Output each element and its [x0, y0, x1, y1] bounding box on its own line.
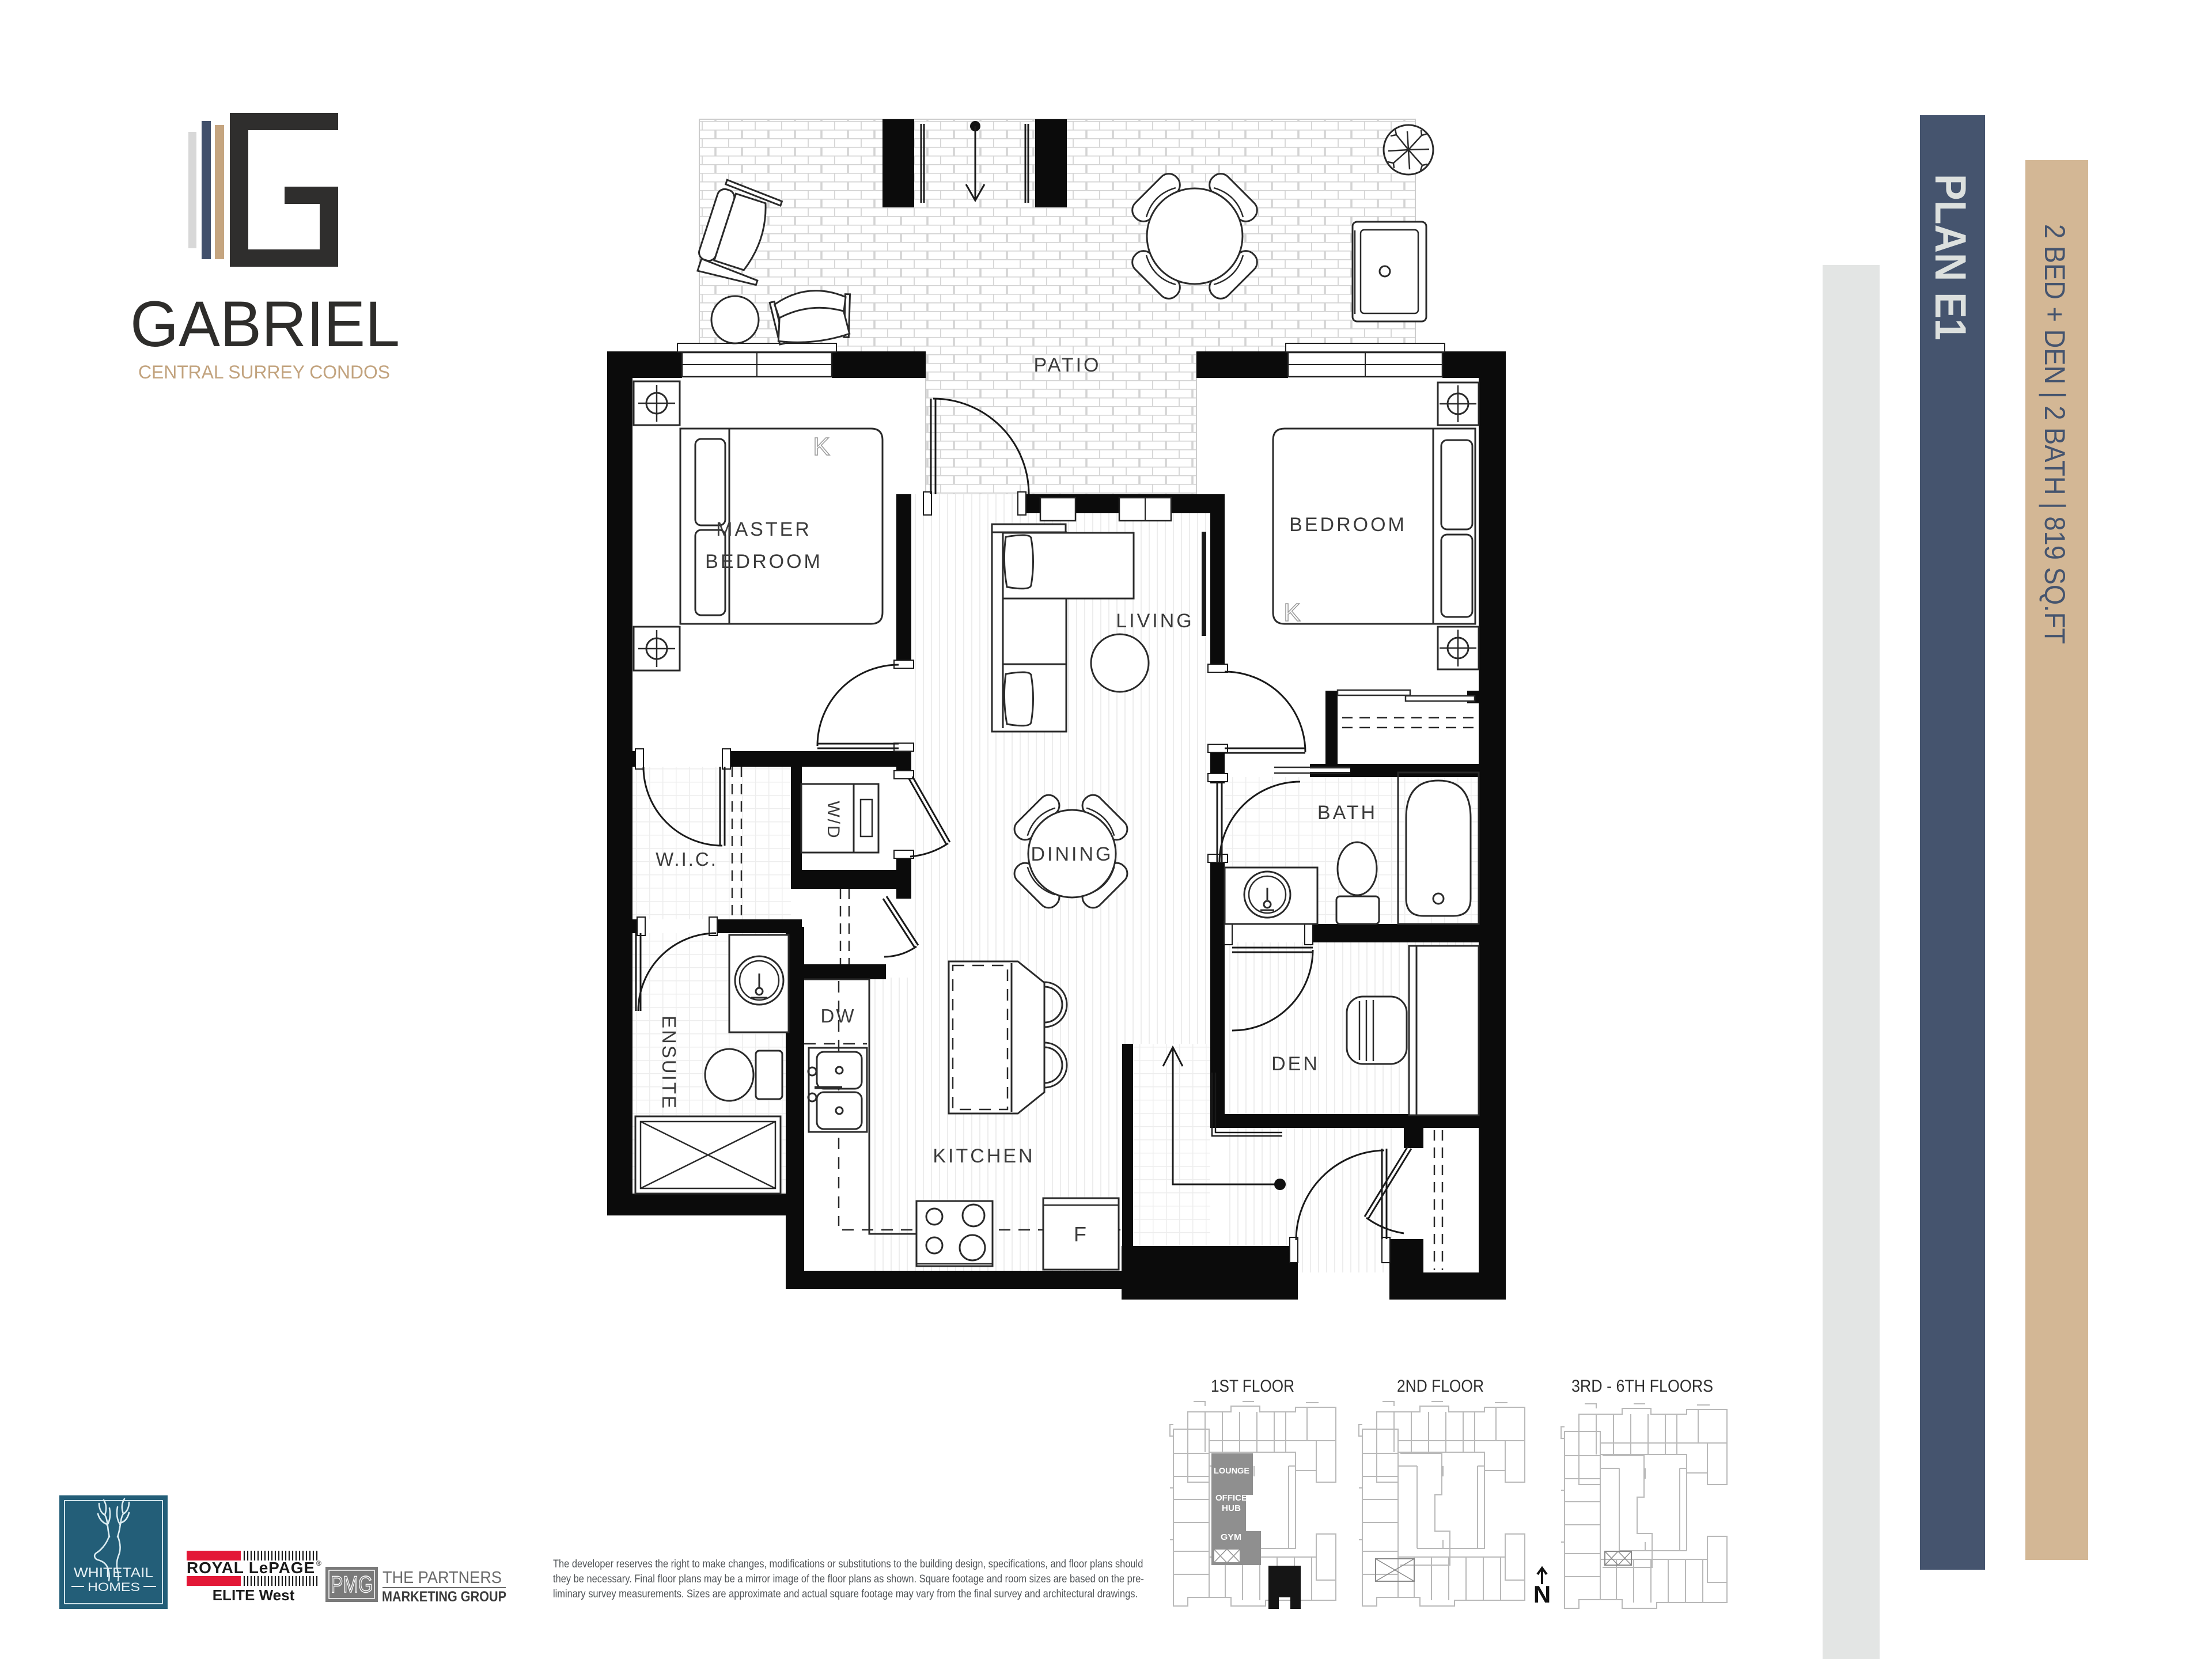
svg-text:1ST FLOOR: 1ST FLOOR	[1211, 1377, 1294, 1396]
svg-text:CENTRAL SURREY CONDOS: CENTRAL SURREY CONDOS	[138, 362, 390, 382]
svg-text:ROYAL LePAGE: ROYAL LePAGE	[187, 1559, 315, 1577]
svg-text:OFFICE: OFFICE	[1215, 1493, 1247, 1503]
svg-text:GABRIEL: GABRIEL	[130, 288, 400, 360]
svg-text:WHITETAIL: WHITETAIL	[74, 1565, 153, 1581]
svg-text:DW: DW	[821, 1005, 856, 1027]
svg-text:2ND FLOOR: 2ND FLOOR	[1397, 1377, 1484, 1396]
svg-text:3RD - 6TH FLOORS: 3RD - 6TH FLOORS	[1571, 1377, 1713, 1396]
svg-text:N: N	[1533, 1581, 1551, 1608]
svg-text:PLAN E1: PLAN E1	[1926, 174, 1975, 340]
svg-text:BATH: BATH	[1317, 802, 1377, 824]
svg-text:ENSUITE: ENSUITE	[658, 1016, 680, 1110]
svg-text:W/D: W/D	[824, 801, 843, 839]
svg-text:ELITE West: ELITE West	[213, 1586, 295, 1604]
svg-text:MARKETING GROUP: MARKETING GROUP	[382, 1589, 506, 1605]
svg-text:LIVING: LIVING	[1116, 610, 1194, 632]
svg-text:HOMES: HOMES	[88, 1581, 140, 1594]
svg-text:®: ®	[316, 1559, 321, 1567]
svg-text:THE PARTNERS: THE PARTNERS	[382, 1569, 502, 1587]
svg-text:KITCHEN: KITCHEN	[933, 1145, 1035, 1167]
svg-text:F: F	[1074, 1222, 1088, 1246]
svg-text:DINING: DINING	[1031, 843, 1113, 865]
svg-text:HUB: HUB	[1222, 1503, 1241, 1513]
svg-text:LOUNGE: LOUNGE	[1214, 1466, 1249, 1476]
svg-text:PATIO: PATIO	[1034, 354, 1101, 376]
svg-text:GYM: GYM	[1221, 1532, 1241, 1542]
svg-text:PMG: PMG	[331, 1572, 373, 1597]
svg-text:K: K	[1283, 599, 1300, 627]
svg-text:BEDROOM: BEDROOM	[705, 551, 823, 573]
svg-text:DEN: DEN	[1271, 1053, 1320, 1075]
svg-text:2 BED + DEN | 2 BATH | 819 SQ.: 2 BED + DEN | 2 BATH | 819 SQ.FT	[2039, 224, 2071, 644]
svg-text:MASTER: MASTER	[716, 518, 812, 540]
svg-text:K: K	[813, 433, 829, 461]
svg-text:W.I.C.: W.I.C.	[656, 849, 718, 870]
svg-text:BEDROOM: BEDROOM	[1289, 514, 1407, 536]
